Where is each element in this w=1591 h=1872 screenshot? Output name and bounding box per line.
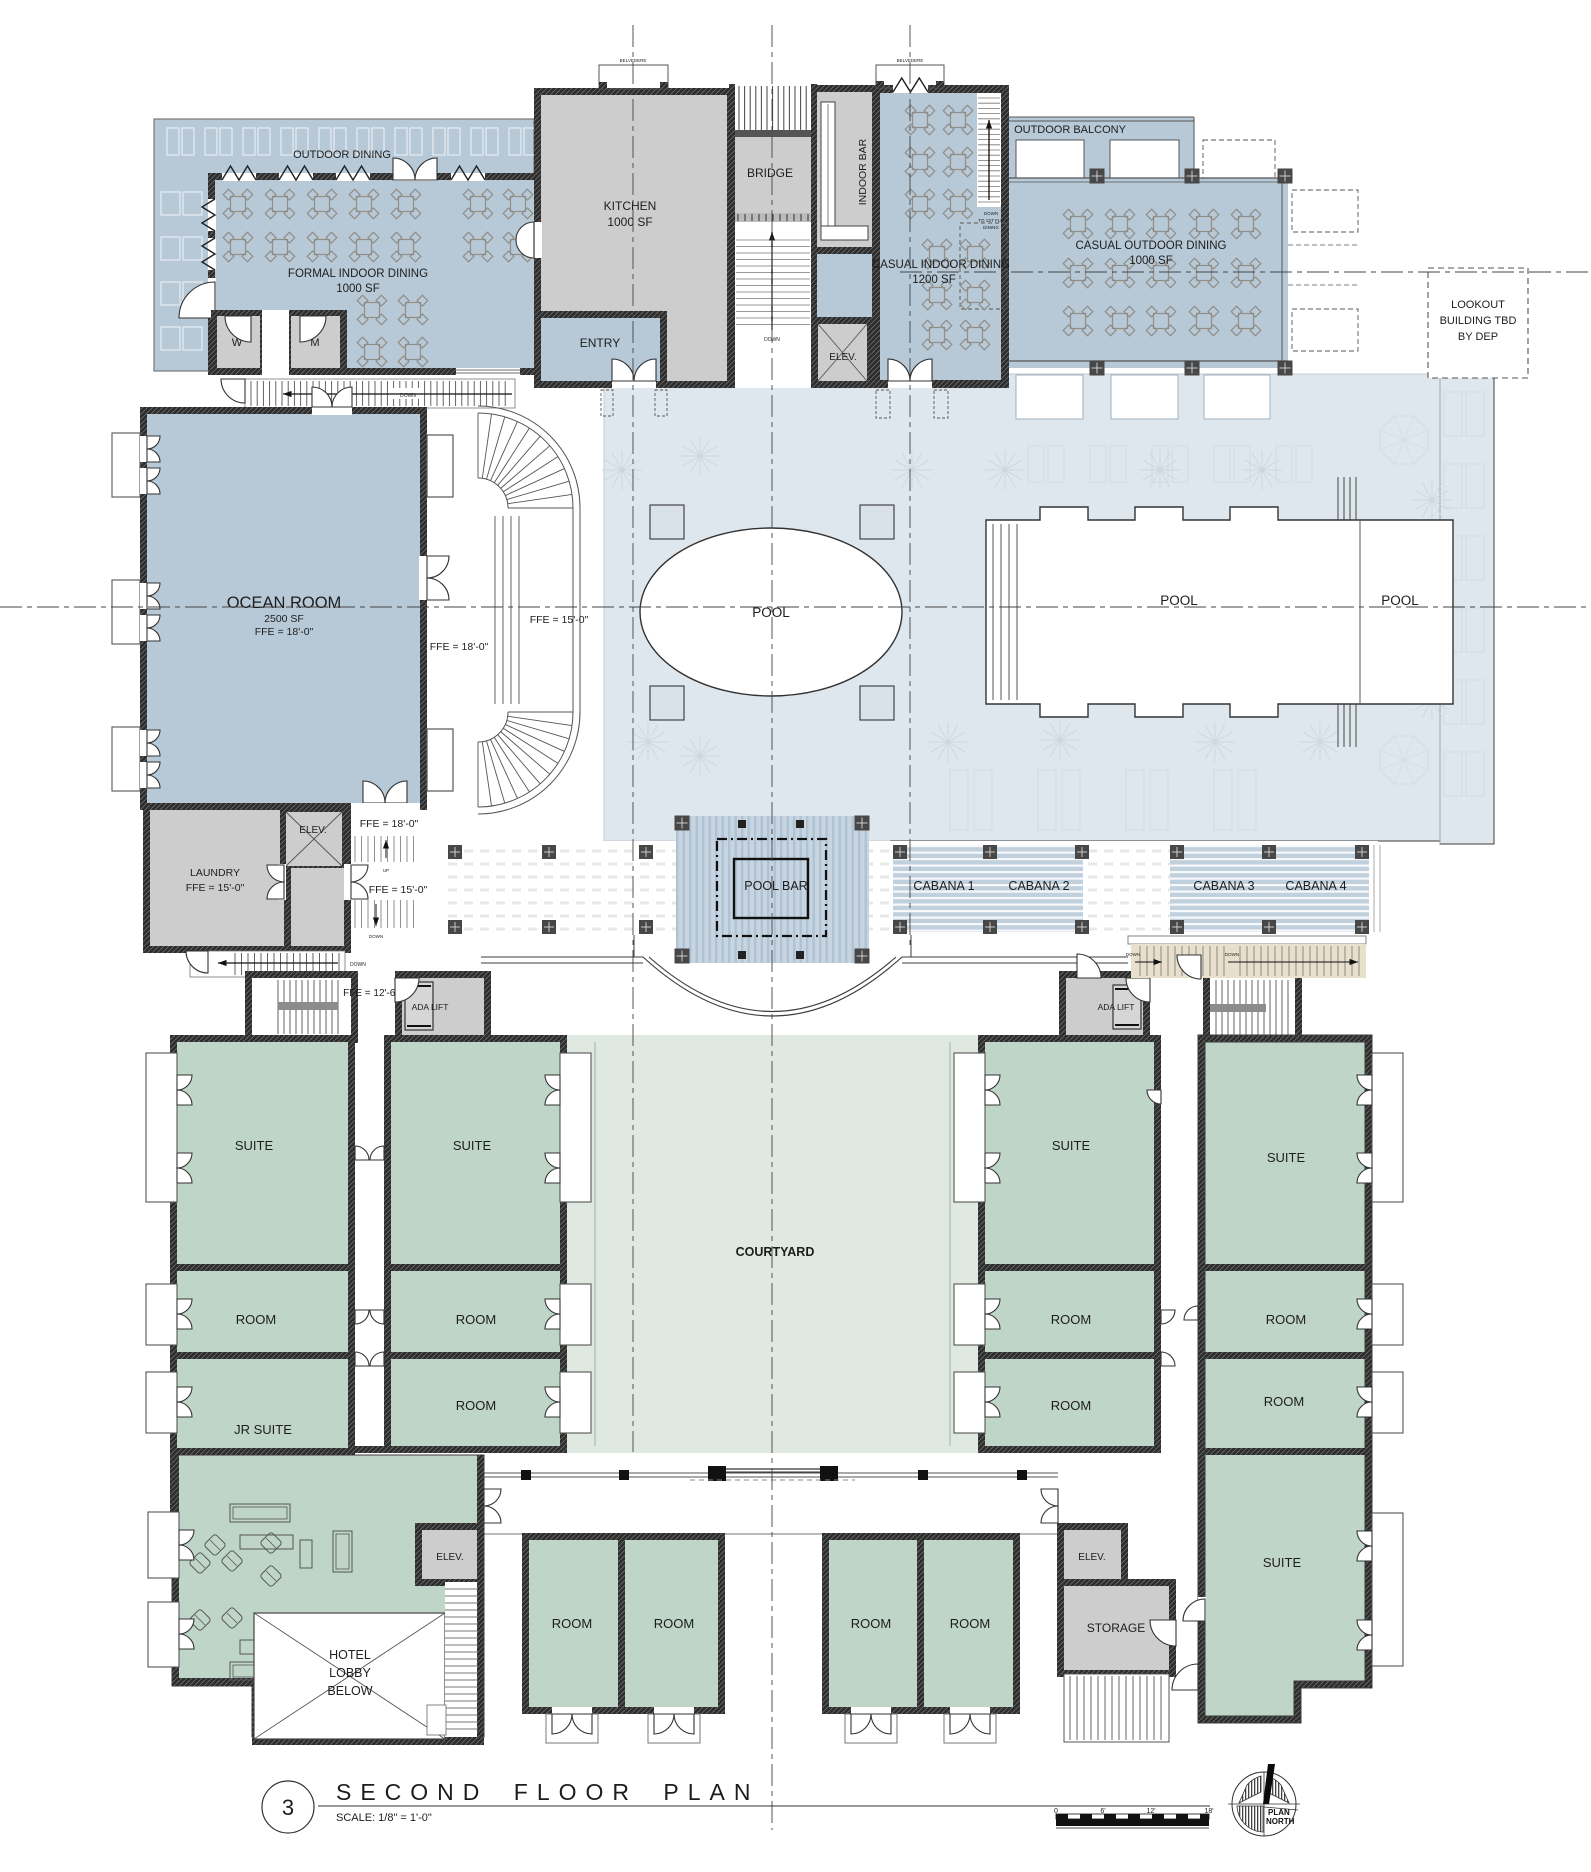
svg-text:ELEV.: ELEV.: [436, 1552, 463, 1563]
svg-text:FFE = 18'-0": FFE = 18'-0": [255, 626, 314, 638]
svg-text:SUITE: SUITE: [1267, 1150, 1306, 1165]
svg-text:ROOM: ROOM: [456, 1312, 496, 1327]
svg-text:BRIDGE: BRIDGE: [747, 166, 793, 180]
svg-text:NORTH: NORTH: [1266, 1817, 1295, 1826]
svg-text:ADA LIFT: ADA LIFT: [412, 1002, 449, 1012]
svg-text:HOTEL: HOTEL: [329, 1648, 371, 1662]
svg-text:LOBBY: LOBBY: [329, 1666, 371, 1680]
svg-text:SUITE: SUITE: [235, 1138, 274, 1153]
svg-text:INDOOR BAR: INDOOR BAR: [857, 138, 869, 205]
svg-text:PLAN: PLAN: [1268, 1808, 1290, 1817]
svg-text:SUITE: SUITE: [1052, 1138, 1091, 1153]
svg-text:1200 SF: 1200 SF: [912, 274, 955, 286]
svg-text:UP: UP: [383, 868, 389, 873]
svg-text:1000 SF: 1000 SF: [336, 283, 379, 295]
svg-text:FORMAL INDOOR DINING: FORMAL INDOOR DINING: [288, 268, 428, 280]
svg-text:OUTDOOR BALCONY: OUTDOOR BALCONY: [1014, 124, 1127, 136]
svg-text:BELOW: BELOW: [327, 1684, 372, 1698]
svg-text:OCEAN ROOM: OCEAN ROOM: [227, 594, 342, 612]
svg-text:COURTYARD: COURTYARD: [736, 1245, 815, 1259]
svg-text:1000 SF: 1000 SF: [607, 215, 652, 229]
svg-text:CABANA 1: CABANA 1: [913, 879, 974, 893]
svg-text:FFE = 18'-0": FFE = 18'-0": [430, 641, 489, 653]
svg-text:POOL BAR: POOL BAR: [744, 879, 807, 893]
svg-text:FFE = 18'-0": FFE = 18'-0": [360, 818, 419, 830]
svg-text:BUILDING TBD: BUILDING TBD: [1440, 315, 1517, 327]
svg-text:OUTDOOR DINING: OUTDOOR DINING: [293, 149, 391, 161]
svg-text:ROOM: ROOM: [1051, 1312, 1091, 1327]
svg-text:FFE = 12'-6": FFE = 12'-6": [343, 988, 399, 999]
svg-text:SECOND FLOOR PLAN: SECOND FLOOR PLAN: [336, 1779, 760, 1805]
svg-text:ROOM: ROOM: [950, 1616, 990, 1631]
svg-text:ROOM: ROOM: [552, 1616, 592, 1631]
svg-text:DOWN: DOWN: [400, 393, 416, 399]
svg-text:BY DEP: BY DEP: [1458, 331, 1498, 343]
svg-text:ROOM: ROOM: [1266, 1312, 1306, 1327]
svg-text:ENTRY: ENTRY: [580, 336, 620, 350]
svg-text:3: 3: [282, 1795, 294, 1820]
svg-text:SUITE: SUITE: [453, 1138, 492, 1153]
svg-text:ROOM: ROOM: [851, 1616, 891, 1631]
svg-text:ADA LIFT: ADA LIFT: [1098, 1002, 1135, 1012]
svg-text:ELEV.: ELEV.: [299, 825, 326, 836]
svg-text:ROOM: ROOM: [236, 1312, 276, 1327]
svg-text:TO 1ST FLR: TO 1ST FLR: [978, 218, 1004, 223]
svg-text:STORAGE: STORAGE: [1087, 1621, 1145, 1635]
svg-text:FFE = 15'-0": FFE = 15'-0": [530, 614, 589, 626]
svg-text:ROOM: ROOM: [456, 1398, 496, 1413]
svg-text:CASUAL INDOOR DINING: CASUAL INDOOR DINING: [872, 259, 1010, 271]
svg-text:DINING: DINING: [983, 225, 999, 230]
svg-text:CABANA 4: CABANA 4: [1285, 879, 1346, 893]
svg-text:LAUNDRY: LAUNDRY: [190, 867, 240, 879]
svg-text:ELEV.: ELEV.: [1078, 1552, 1105, 1563]
svg-text:DOWN: DOWN: [1225, 952, 1239, 957]
svg-text:ROOM: ROOM: [654, 1616, 694, 1631]
svg-text:FFE = 15'-0": FFE = 15'-0": [369, 884, 428, 896]
svg-text:DOWN: DOWN: [369, 934, 383, 939]
svg-text:POOL: POOL: [1160, 593, 1198, 608]
svg-text:CABANA 2: CABANA 2: [1008, 879, 1069, 893]
svg-text:LOOKOUT: LOOKOUT: [1451, 299, 1505, 311]
svg-text:SUITE: SUITE: [1263, 1555, 1302, 1570]
svg-text:ROOM: ROOM: [1264, 1394, 1304, 1409]
svg-text:2500 SF: 2500 SF: [264, 613, 304, 625]
svg-text:1000 SF: 1000 SF: [1129, 255, 1172, 267]
svg-text:KITCHEN: KITCHEN: [604, 199, 657, 213]
svg-text:ROOM: ROOM: [1051, 1398, 1091, 1413]
svg-text:JR SUITE: JR SUITE: [234, 1422, 292, 1437]
svg-text:CASUAL OUTDOOR DINING: CASUAL OUTDOOR DINING: [1075, 240, 1226, 252]
svg-text:DOWN: DOWN: [1126, 952, 1140, 957]
svg-text:CABANA 3: CABANA 3: [1193, 879, 1254, 893]
svg-text:POOL: POOL: [1381, 593, 1419, 608]
svg-text:DOWN: DOWN: [984, 211, 998, 216]
svg-text:DOWN: DOWN: [350, 962, 366, 968]
svg-text:SCALE: 1/8" = 1'-0": SCALE: 1/8" = 1'-0": [336, 1812, 432, 1824]
svg-text:FFE = 15'-0": FFE = 15'-0": [186, 882, 245, 894]
svg-text:ELEV.: ELEV.: [829, 352, 856, 363]
